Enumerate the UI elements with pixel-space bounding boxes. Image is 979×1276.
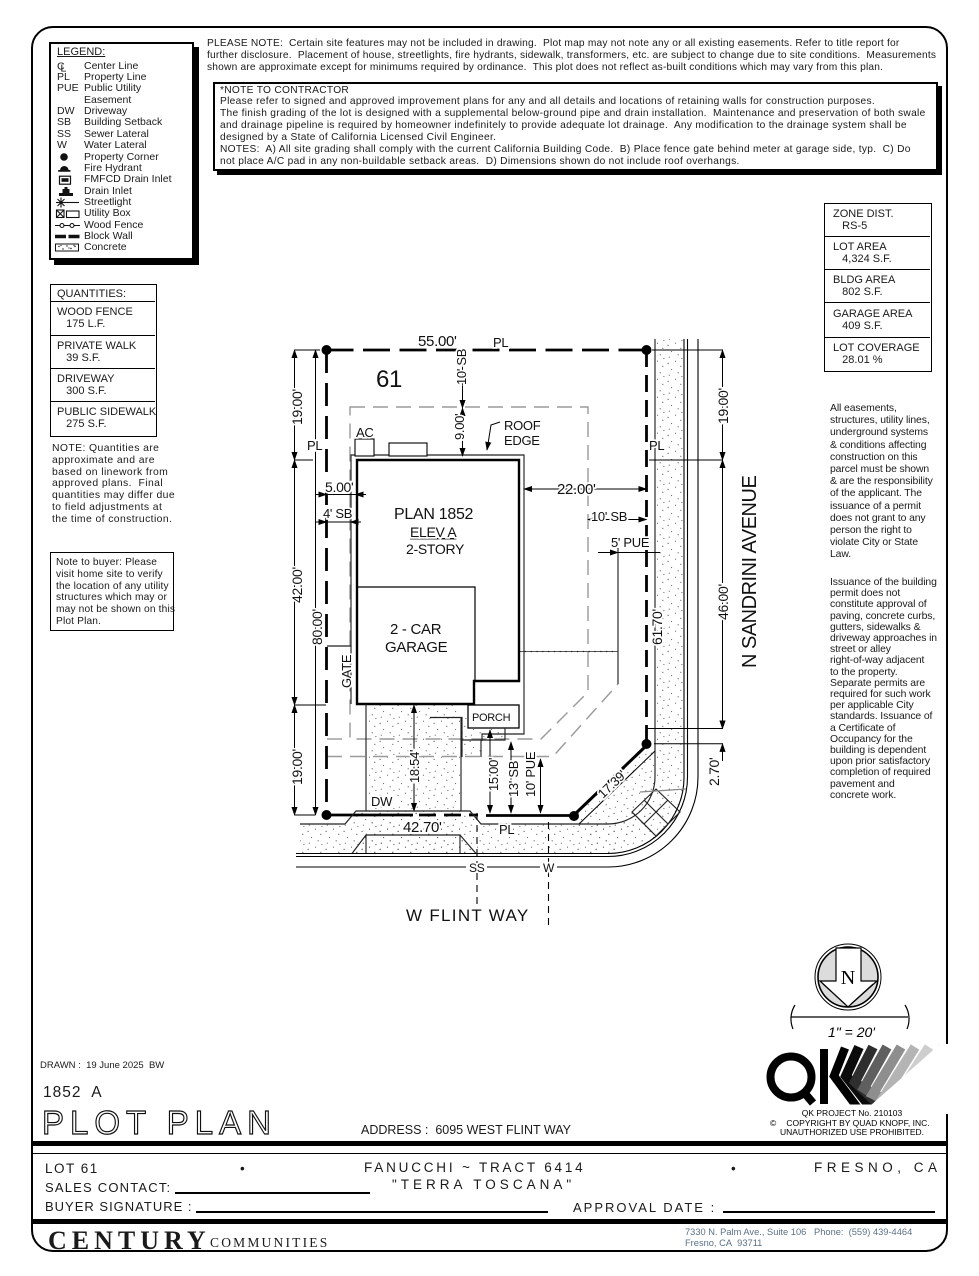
svg-text:W: W — [543, 861, 555, 875]
svg-text:61.70': 61.70' — [649, 609, 665, 645]
svg-text:2.70': 2.70' — [706, 758, 722, 786]
svg-text:46.00': 46.00' — [715, 584, 731, 620]
svg-text:22.00': 22.00' — [557, 481, 596, 498]
svg-text:PORCH: PORCH — [472, 712, 511, 724]
svg-text:QK PROJECT No. 210103: QK PROJECT No. 210103 — [802, 1108, 903, 1118]
svg-text:PL: PL — [649, 438, 664, 453]
svg-text:PL: PL — [307, 438, 322, 453]
svg-text:PL: PL — [499, 822, 514, 837]
svg-text:ROOF: ROOF — [504, 418, 541, 433]
svg-text:55.00': 55.00' — [418, 333, 457, 350]
svg-text:80.00': 80.00' — [309, 609, 325, 645]
svg-text:EDGE: EDGE — [504, 433, 540, 448]
svg-text:19.00': 19.00' — [289, 749, 305, 785]
svg-text:W FLINT WAY: W FLINT WAY — [406, 906, 530, 925]
svg-text:19.00': 19.00' — [289, 389, 305, 425]
svg-text:PLAN 1852: PLAN 1852 — [394, 506, 474, 523]
svg-text:19.00': 19.00' — [715, 388, 731, 424]
svg-text:10' SB: 10' SB — [591, 509, 627, 524]
svg-text:SS: SS — [469, 861, 485, 875]
svg-text:GARAGE: GARAGE — [385, 639, 448, 656]
svg-text:N SANDRINI AVENUE: N SANDRINI AVENUE — [739, 476, 761, 668]
svg-text:10' PUE: 10' PUE — [523, 751, 538, 797]
svg-text:2-STORY: 2-STORY — [406, 541, 465, 557]
svg-text:4' SB: 4' SB — [323, 506, 352, 521]
svg-text:GATE: GATE — [339, 654, 354, 688]
svg-text:5.00': 5.00' — [325, 479, 353, 495]
svg-text:DW: DW — [371, 794, 393, 809]
svg-text:15.00': 15.00' — [486, 758, 501, 791]
svg-text:ELEV A: ELEV A — [410, 524, 457, 540]
svg-text:UNAUTHORIZED USE PROHIBITED.: UNAUTHORIZED USE PROHIBITED. — [780, 1127, 924, 1137]
svg-text:5' PUE: 5' PUE — [611, 535, 650, 550]
svg-text:N: N — [841, 967, 855, 989]
svg-text:42.00': 42.00' — [289, 567, 305, 603]
svg-text:42.70': 42.70' — [403, 819, 442, 836]
svg-text:1" = 20': 1" = 20' — [828, 1024, 876, 1040]
svg-text:9.00': 9.00' — [452, 414, 467, 440]
svg-text:L: L — [61, 63, 67, 75]
svg-text:AC: AC — [356, 425, 373, 440]
svg-text:2 - CAR: 2 - CAR — [390, 621, 442, 638]
svg-text:PL: PL — [493, 335, 508, 350]
svg-text:18.54': 18.54' — [407, 750, 422, 783]
svg-text:10' SB: 10' SB — [454, 349, 469, 385]
svg-text:61: 61 — [376, 366, 402, 393]
svg-text:©: © — [770, 1118, 777, 1128]
svg-text:13' SB: 13' SB — [506, 761, 521, 797]
